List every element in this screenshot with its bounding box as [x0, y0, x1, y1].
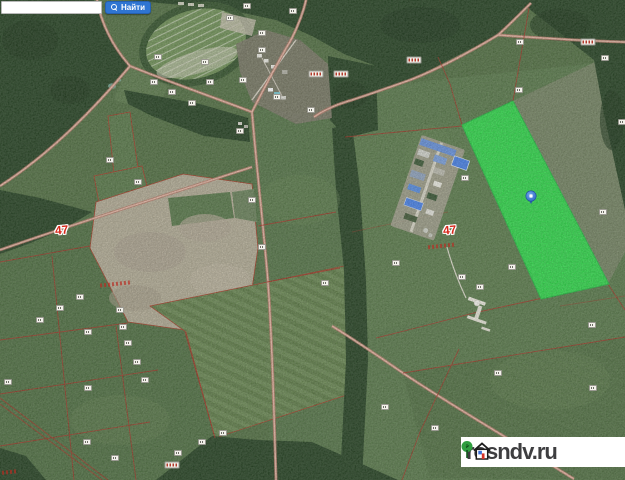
watermark: rosndv.ru: [461, 437, 625, 467]
region-code-label: 47: [443, 223, 457, 236]
search-input[interactable]: [1, 1, 102, 14]
search-button-label: Найти: [121, 3, 145, 12]
search-button[interactable]: Найти: [105, 1, 151, 14]
search-bar: Найти: [1, 1, 151, 14]
satellite-imagery[interactable]: [0, 0, 625, 480]
search-icon: [111, 4, 118, 11]
grain-overlay-light: [0, 0, 625, 480]
map-canvas[interactable]: 47 47 Найти rosndv.ru: [0, 0, 625, 480]
region-code-label: 47: [55, 223, 69, 236]
house-tree-logo-icon: [461, 437, 491, 463]
